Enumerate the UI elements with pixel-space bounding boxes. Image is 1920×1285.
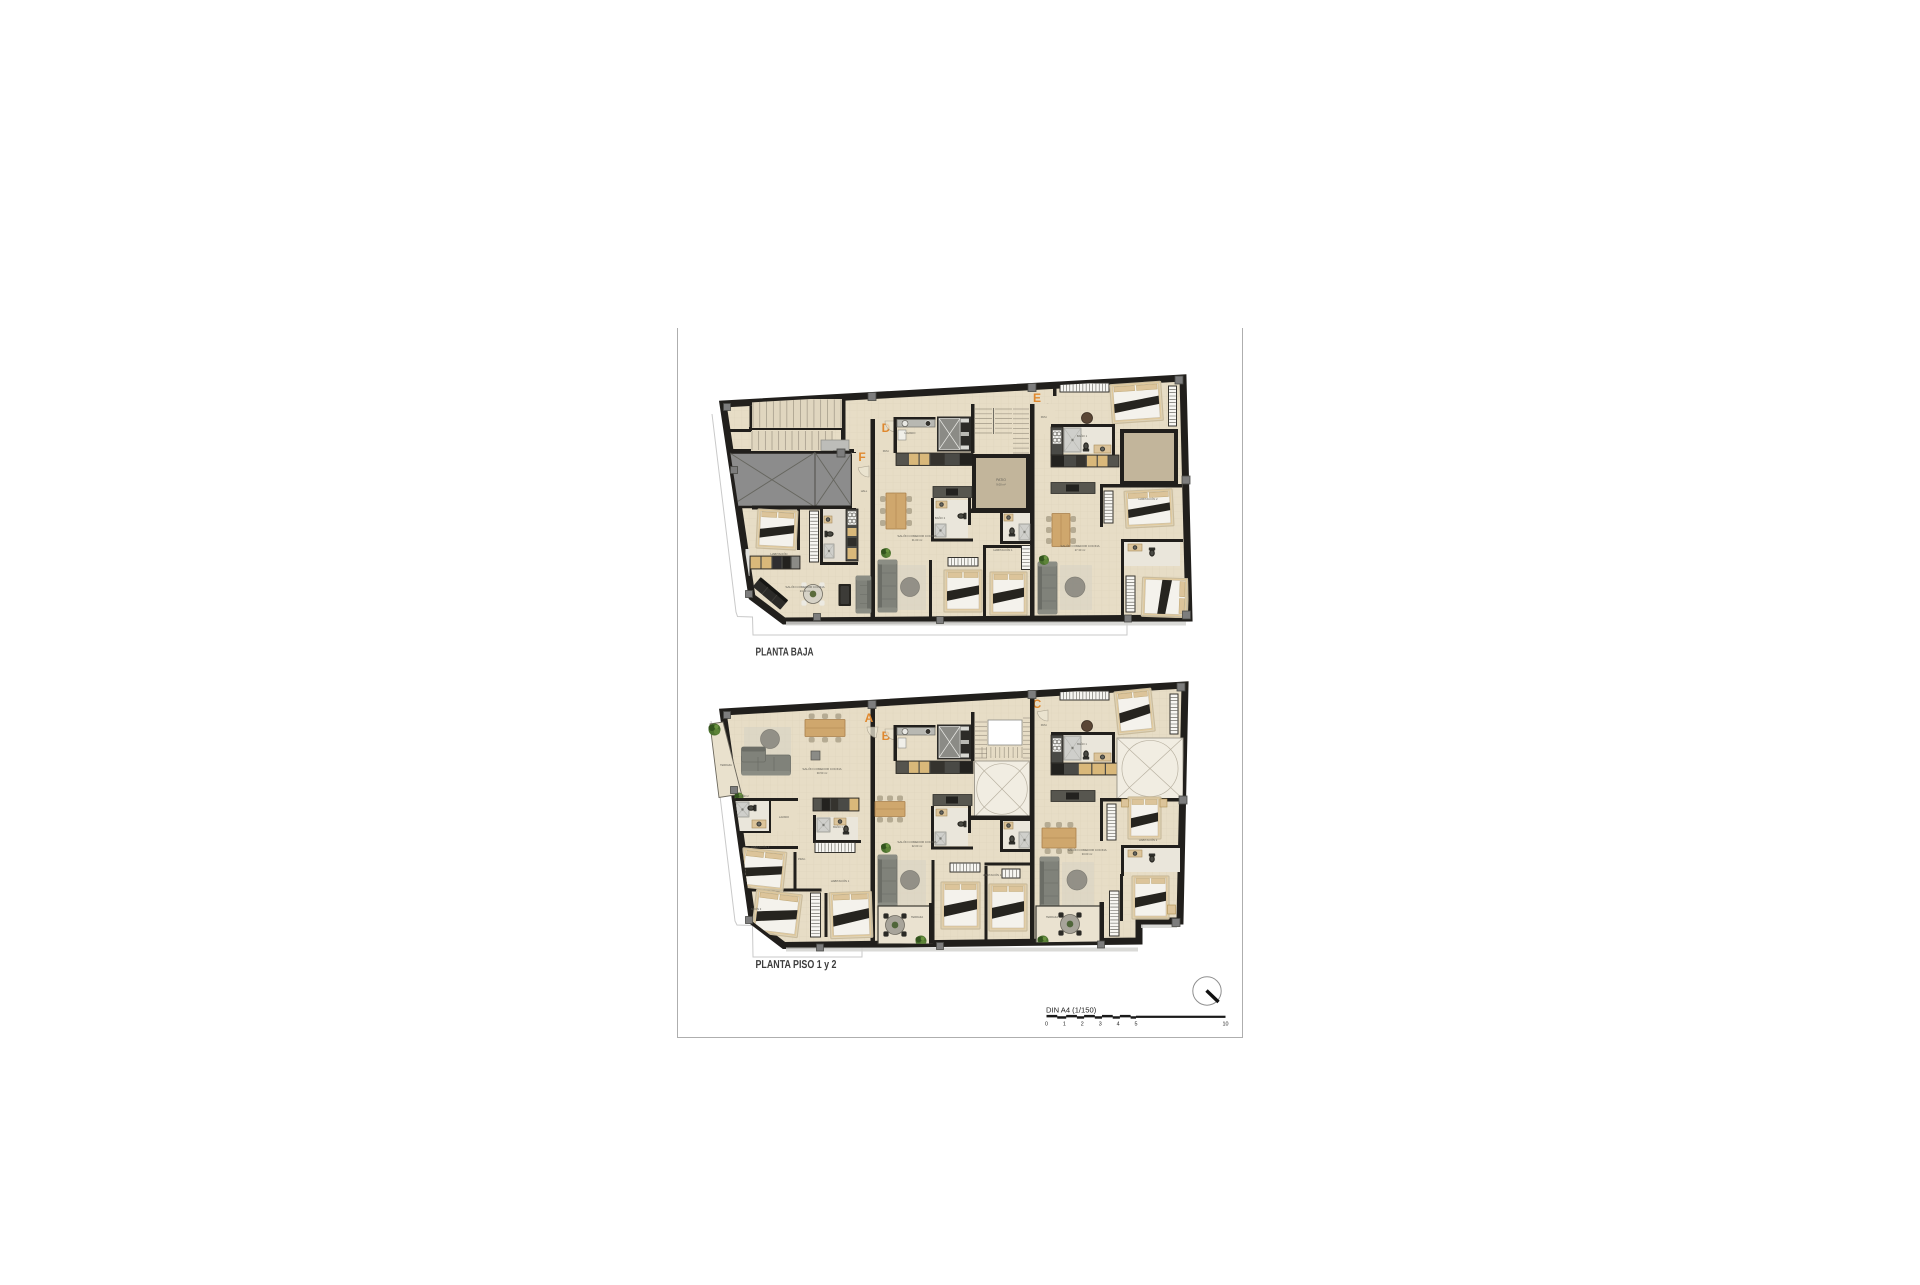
svg-text:0: 0 xyxy=(1045,1022,1048,1028)
svg-text:HALL: HALL xyxy=(861,489,868,493)
svg-text:A: A xyxy=(865,711,874,725)
svg-text:HABITACIÓN 1: HABITACIÓN 1 xyxy=(993,547,1013,552)
svg-text:DIN A4 (1/150): DIN A4 (1/150) xyxy=(1046,1006,1097,1015)
svg-text:TERRAZA: TERRAZA xyxy=(720,764,732,767)
svg-text:BAÑO 2: BAÑO 2 xyxy=(935,515,946,520)
svg-text:LAVADO: LAVADO xyxy=(905,431,917,435)
svg-text:27.30 m²: 27.30 m² xyxy=(1075,548,1086,552)
svg-text:F: F xyxy=(858,450,865,464)
svg-text:HABITACIÓN: HABITACIÓN xyxy=(771,551,788,556)
svg-text:10: 10 xyxy=(1223,1022,1229,1028)
svg-text:31.00 m²: 31.00 m² xyxy=(912,538,923,542)
svg-text:TERRAZA: TERRAZA xyxy=(1046,915,1058,919)
svg-text:24.10 m²: 24.10 m² xyxy=(800,589,811,593)
svg-text:HABITACIÓN 2: HABITACIÓN 2 xyxy=(1138,496,1158,501)
svg-text:30.50 m²: 30.50 m² xyxy=(817,771,828,775)
svg-text:E: E xyxy=(1033,391,1041,405)
svg-text:9.00 m²: 9.00 m² xyxy=(996,483,1006,487)
svg-text:32.00 m²: 32.00 m² xyxy=(912,844,923,848)
svg-text:PLANTA PISO 1 y 2: PLANTA PISO 1 y 2 xyxy=(755,959,836,971)
svg-text:TERRAZA: TERRAZA xyxy=(911,915,923,919)
svg-text:SALÓN COMEDOR COCINA: SALÓN COMEDOR COCINA xyxy=(802,766,841,771)
svg-text:33.00 m²: 33.00 m² xyxy=(1082,852,1093,856)
svg-text:PLANTA BAJA: PLANTA BAJA xyxy=(755,647,813,659)
svg-text:SALÓN COMEDOR COCINA: SALÓN COMEDOR COCINA xyxy=(785,584,824,589)
svg-text:5: 5 xyxy=(1135,1022,1138,1028)
svg-text:SALÓN COMEDOR COCINA: SALÓN COMEDOR COCINA xyxy=(1060,543,1099,548)
svg-text:PASI.: PASI. xyxy=(1041,415,1048,419)
svg-text:LAVADO: LAVADO xyxy=(779,815,789,819)
svg-text:SALÓN COMEDOR COCINA: SALÓN COMEDOR COCINA xyxy=(897,533,936,538)
svg-text:PRAC.: PRAC. xyxy=(798,857,806,861)
svg-text:1: 1 xyxy=(1063,1022,1066,1028)
svg-text:2: 2 xyxy=(1081,1022,1084,1028)
svg-text:SALÓN COMEDOR COCINA: SALÓN COMEDOR COCINA xyxy=(1067,847,1106,852)
svg-text:4: 4 xyxy=(1117,1022,1120,1028)
svg-text:PATIO: PATIO xyxy=(996,478,1006,482)
svg-text:PASI.: PASI. xyxy=(883,449,890,453)
svg-text:3: 3 xyxy=(1099,1022,1102,1028)
svg-text:SALÓN COMEDOR COCINA: SALÓN COMEDOR COCINA xyxy=(897,839,936,844)
svg-text:PASI.: PASI. xyxy=(1041,723,1048,727)
svg-text:BAÑO 1: BAÑO 1 xyxy=(1077,433,1088,438)
